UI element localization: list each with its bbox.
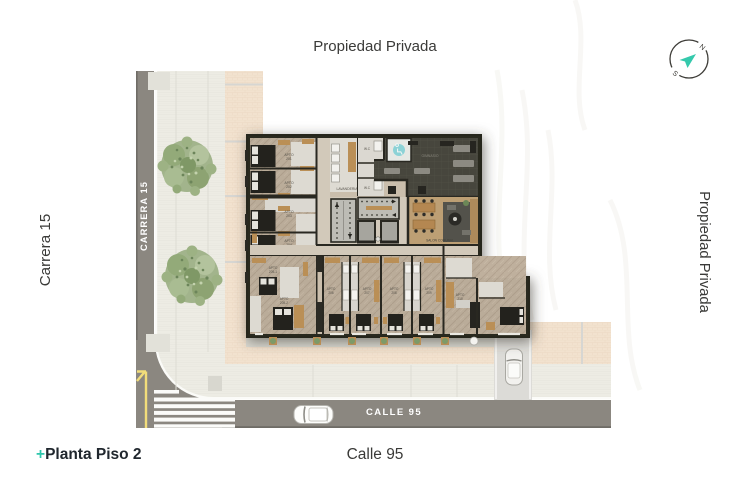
svg-text:CALLE 95: CALLE 95: [366, 407, 422, 418]
svg-text:Propiedad Privada: Propiedad Privada: [696, 191, 712, 314]
svg-text:Calle 95: Calle 95: [347, 446, 404, 463]
svg-text:CARRERA 15: CARRERA 15: [139, 181, 149, 251]
svg-text:Carrera 15: Carrera 15: [37, 214, 54, 287]
svg-text:Propiedad Privada: Propiedad Privada: [313, 38, 437, 55]
svg-text:+Planta Piso 2: +Planta Piso 2: [36, 446, 142, 463]
